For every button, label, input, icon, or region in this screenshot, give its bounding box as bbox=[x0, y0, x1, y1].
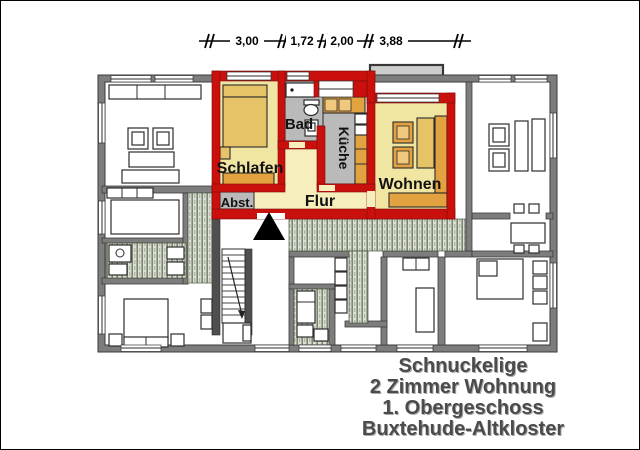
dimension-label: 3,00 bbox=[235, 34, 259, 48]
title-block: Schnuckelige 2 Zimmer Wohnung 1. Oberges… bbox=[329, 356, 597, 440]
room-label-abstellraum: Abst. bbox=[221, 195, 254, 210]
bathtub bbox=[286, 83, 315, 97]
title-line-2: 2 Zimmer Wohnung bbox=[329, 377, 597, 398]
neighbour-bottom-closets bbox=[335, 258, 347, 313]
bed-headboard bbox=[223, 85, 267, 97]
dimension-label: 3,88 bbox=[379, 34, 403, 48]
door-opening-kueche bbox=[319, 185, 335, 191]
kitchen-appliance bbox=[355, 125, 367, 135]
corridor-tiles-column bbox=[349, 251, 368, 323]
bed bbox=[223, 97, 267, 147]
table bbox=[417, 118, 434, 168]
dimension-chain: 3,00 1,72 2,00 3,88 bbox=[199, 34, 471, 48]
room-label-schlafen: Schlafen bbox=[217, 160, 284, 177]
door-opening-wohnen bbox=[367, 191, 375, 207]
wohnen-furniture bbox=[389, 116, 447, 207]
room-label-flur: Flur bbox=[305, 193, 335, 210]
title-line-4: Buxtehude-Altkloster bbox=[329, 419, 597, 440]
stairhall-tiles bbox=[188, 193, 212, 283]
sofa-bottom bbox=[389, 193, 447, 207]
title-line-1: Schnuckelige bbox=[329, 356, 597, 377]
dimension-label: 1,72 bbox=[290, 34, 314, 48]
room-label-bad: Bad bbox=[285, 116, 313, 133]
corridor-tiles bbox=[289, 219, 465, 251]
floorplan-flyer: 3,00 1,72 2,00 3,88 Balkon bbox=[0, 0, 640, 450]
room-label-wohnen: Wohnen bbox=[379, 176, 442, 193]
door-opening-bad bbox=[289, 142, 305, 148]
nightstand bbox=[220, 147, 230, 159]
room-flur-arm-floor bbox=[285, 149, 317, 192]
title-line-3: 1. Obergeschoss bbox=[329, 398, 597, 419]
dimension-label: 2,00 bbox=[330, 34, 354, 48]
kitchen-appliance bbox=[355, 114, 367, 124]
neighbour-right-livingroom bbox=[489, 119, 545, 171]
sink bbox=[304, 105, 318, 116]
room-label-kueche: Küche bbox=[336, 127, 352, 170]
